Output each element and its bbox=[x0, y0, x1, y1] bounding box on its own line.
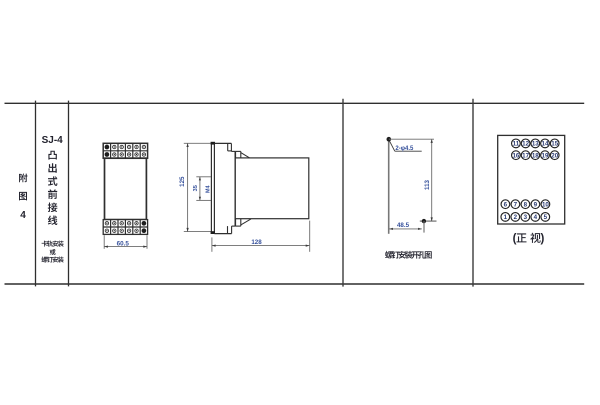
svg-text:16: 16 bbox=[512, 152, 519, 159]
svg-text:17: 17 bbox=[522, 152, 529, 159]
svg-text:113: 113 bbox=[424, 179, 431, 190]
svg-text:3: 3 bbox=[524, 214, 528, 221]
svg-text:2: 2 bbox=[514, 214, 518, 221]
svg-text:M4: M4 bbox=[205, 185, 211, 193]
svg-text:9: 9 bbox=[534, 201, 538, 208]
svg-text:2-φ4.5: 2-φ4.5 bbox=[395, 146, 414, 152]
svg-text:35: 35 bbox=[193, 185, 199, 191]
svg-text:18: 18 bbox=[532, 152, 539, 159]
svg-text:19: 19 bbox=[542, 152, 549, 159]
svg-text:6: 6 bbox=[504, 201, 508, 208]
svg-text:20: 20 bbox=[551, 152, 558, 159]
svg-text:(: ( bbox=[513, 233, 517, 245]
svg-text:5: 5 bbox=[544, 214, 548, 221]
svg-text:15: 15 bbox=[551, 141, 558, 148]
svg-text:4: 4 bbox=[20, 210, 26, 221]
svg-text:7: 7 bbox=[514, 201, 518, 208]
svg-text:8: 8 bbox=[524, 201, 528, 208]
svg-text:10: 10 bbox=[542, 201, 549, 208]
svg-text:11: 11 bbox=[513, 141, 520, 148]
svg-text:14: 14 bbox=[542, 141, 549, 148]
svg-text:): ) bbox=[540, 233, 544, 245]
svg-text:60.5: 60.5 bbox=[117, 240, 130, 247]
svg-text:SJ-4: SJ-4 bbox=[42, 135, 64, 146]
svg-text:128: 128 bbox=[251, 239, 262, 246]
svg-text:12: 12 bbox=[522, 141, 529, 148]
svg-text:1: 1 bbox=[504, 214, 508, 221]
svg-text:125: 125 bbox=[179, 176, 186, 187]
svg-text:4: 4 bbox=[534, 214, 538, 221]
svg-text:13: 13 bbox=[532, 141, 539, 148]
svg-text:48.5: 48.5 bbox=[397, 222, 410, 229]
